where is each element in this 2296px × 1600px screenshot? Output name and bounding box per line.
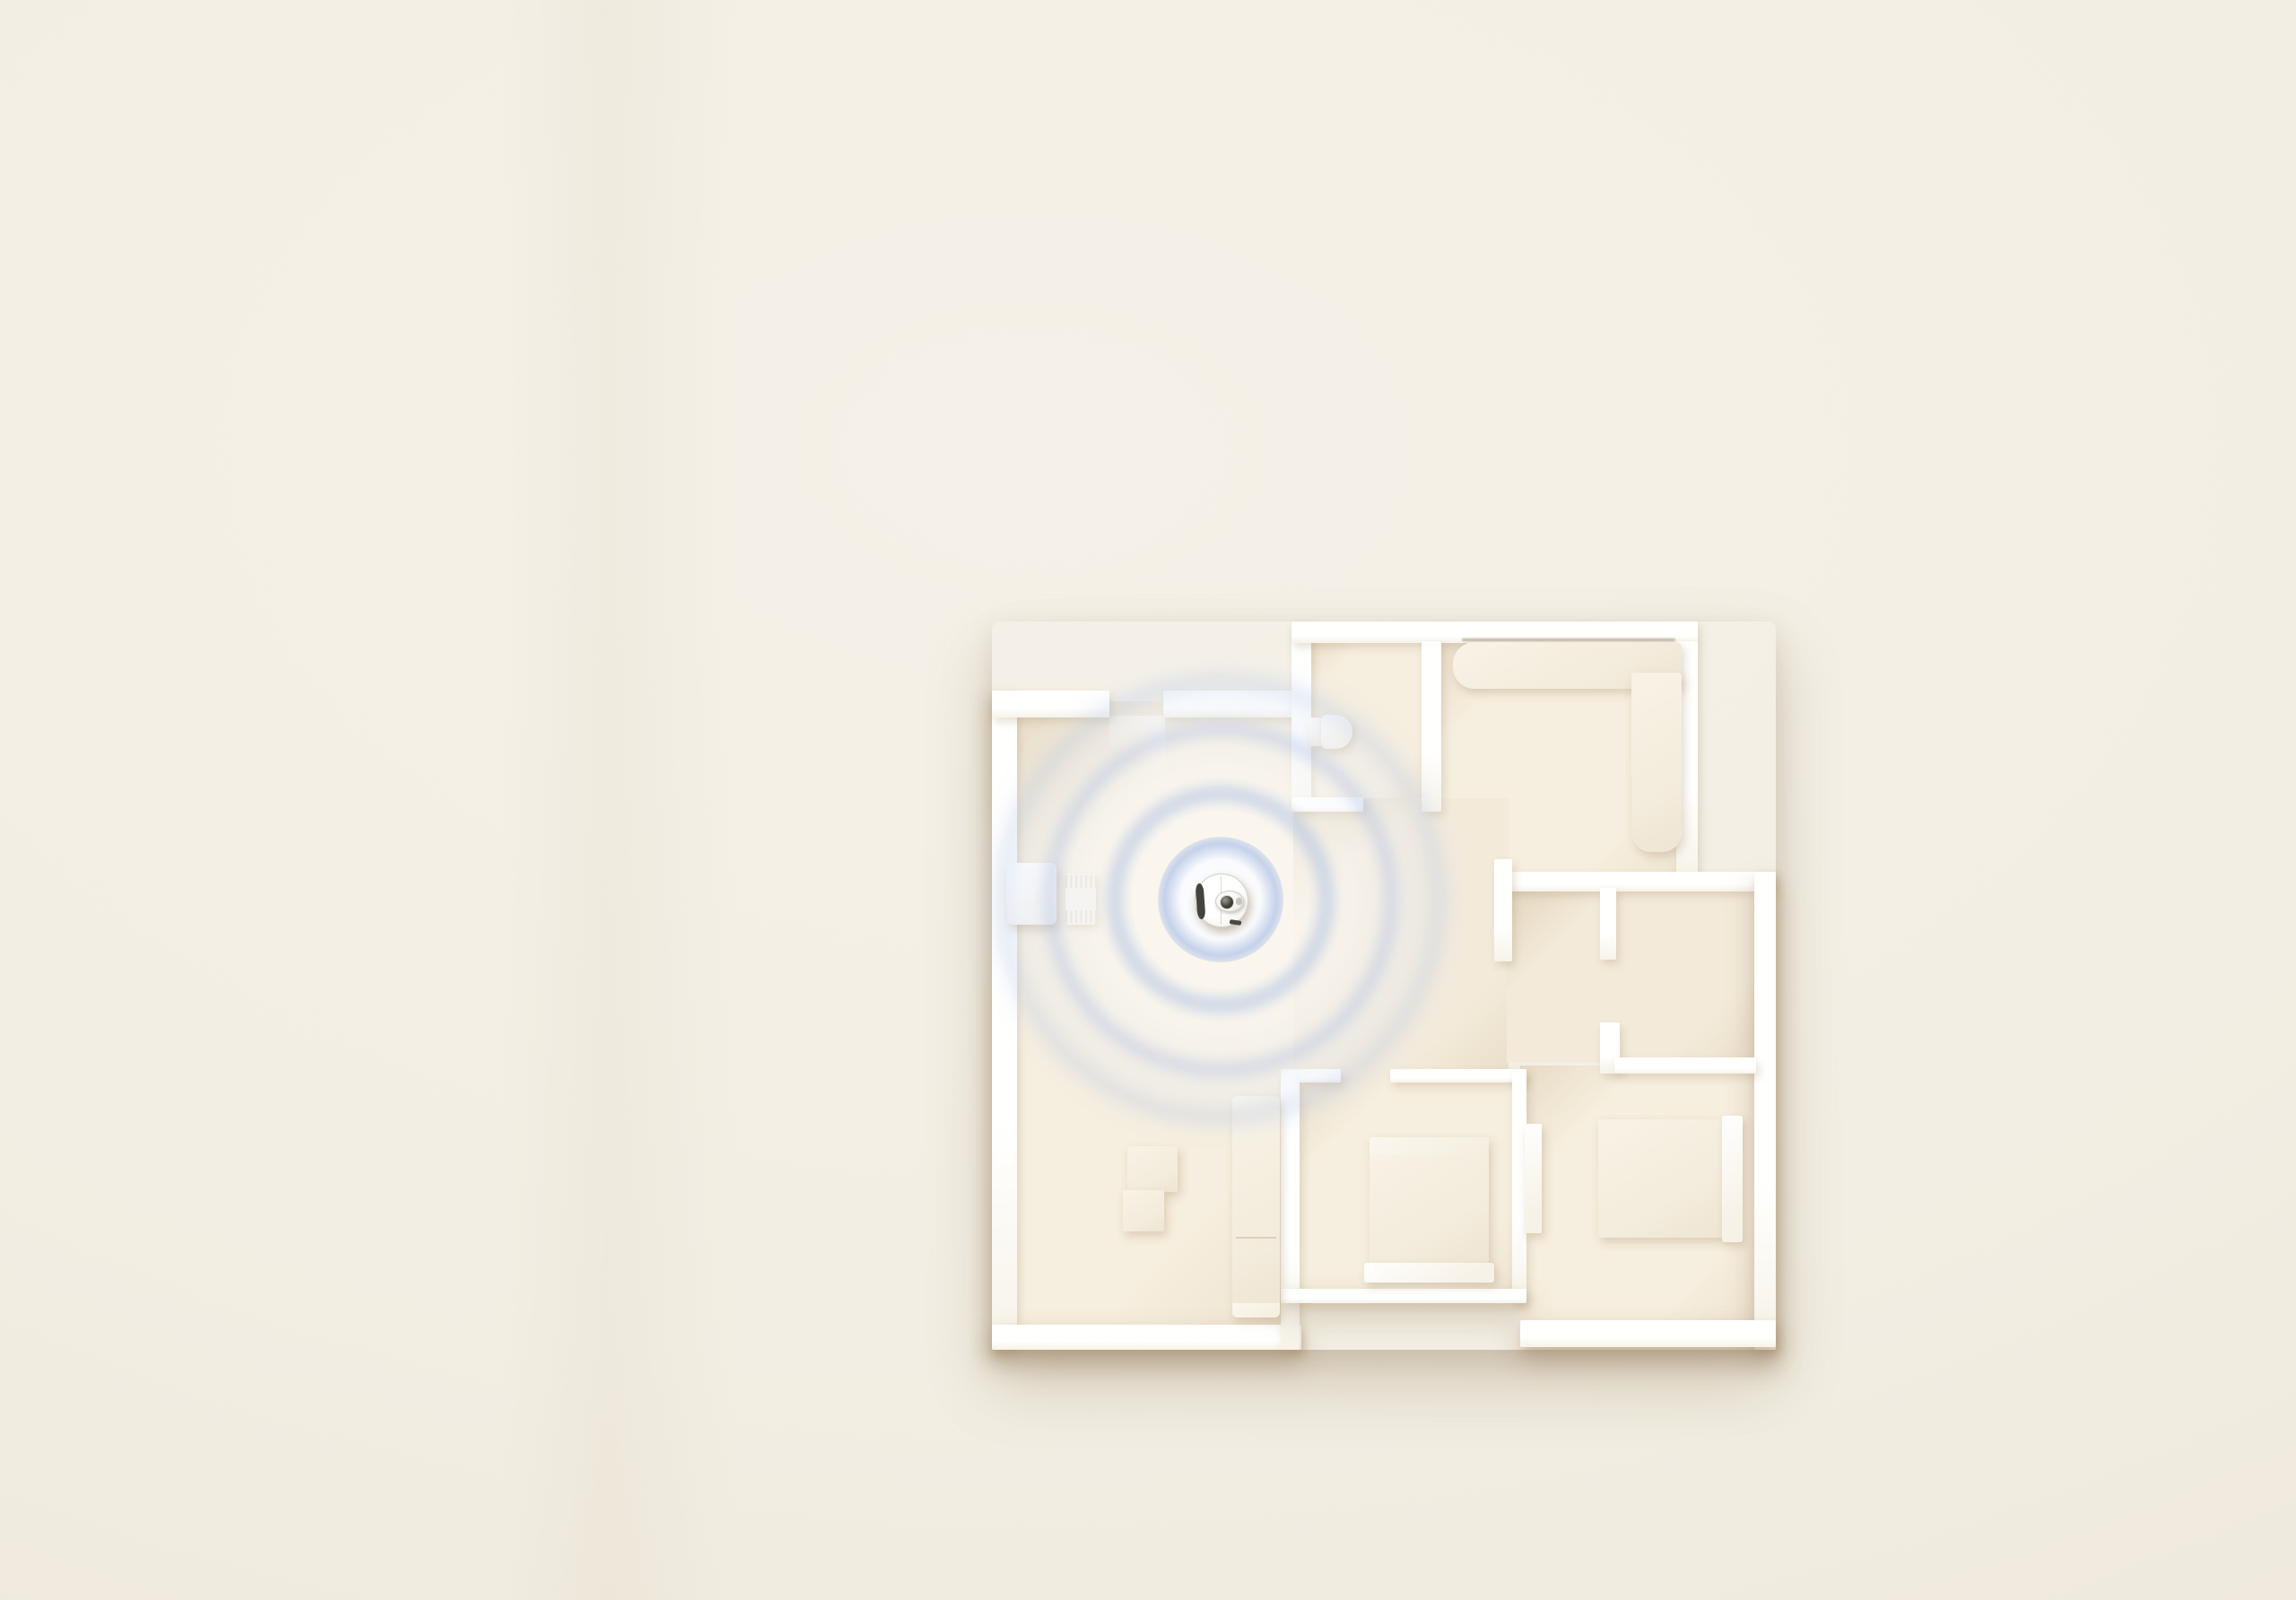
wall-living-left xyxy=(992,691,1017,1350)
storage-box-lower xyxy=(1123,1190,1164,1231)
dock-ribs-bottom xyxy=(1065,910,1096,923)
robot-camera-lens-icon xyxy=(1220,895,1234,909)
wall-bathroom-right xyxy=(1422,641,1441,812)
floor-closet-area xyxy=(1507,883,1760,1063)
robot-sensor-pill xyxy=(1236,898,1242,905)
dock-ribs-top xyxy=(1065,875,1096,888)
scene-canvas xyxy=(0,0,2296,1600)
robot-rear-sensor xyxy=(1230,919,1242,926)
bed-middle-mattress xyxy=(1370,1137,1489,1268)
wall-living-top-left xyxy=(992,691,1109,717)
storage-box-upper xyxy=(1127,1146,1178,1192)
wall-closet-left-stub xyxy=(1494,859,1512,961)
entry-door-light xyxy=(1109,716,1165,801)
floor-hallway xyxy=(1293,798,1509,1076)
dock-ramp-pad xyxy=(1065,874,1096,925)
wall-bedroom-middle-bottom xyxy=(1281,1289,1526,1303)
console-right-bedroom xyxy=(1525,1124,1542,1233)
robot-camera-module xyxy=(1215,891,1244,912)
robot-vacuum xyxy=(1195,874,1248,927)
wall-closet-partition xyxy=(1600,888,1616,960)
bed-middle-footboard xyxy=(1364,1263,1494,1283)
living-sofa-armrest-top xyxy=(1232,1096,1280,1109)
wall-bathroom-bottom xyxy=(1291,797,1363,812)
living-sofa-armrest-bottom xyxy=(1232,1303,1280,1317)
wall-bedroom-right-bottom xyxy=(1520,1320,1776,1347)
wall-living-bottom xyxy=(992,1325,1301,1350)
wall-right-outer xyxy=(1754,872,1776,1350)
wall-bedroom-middle-top-right xyxy=(1390,1069,1526,1083)
robot-side-sensor xyxy=(1196,883,1206,920)
bed-right-mattress xyxy=(1598,1119,1725,1238)
wall-living-top-right xyxy=(1163,691,1298,717)
charging-dock xyxy=(1006,863,1057,925)
living-sofa xyxy=(1232,1096,1280,1317)
toilet-tank xyxy=(1308,717,1321,746)
l-sofa-vertical xyxy=(1631,673,1682,852)
l-sofa-wall-seam xyxy=(1462,639,1675,641)
wall-closet-top xyxy=(1507,872,1776,891)
background-soft-shade xyxy=(502,0,735,1600)
wall-bedroom-middle-top-left xyxy=(1300,1069,1341,1083)
wall-bathroom-left xyxy=(1291,622,1311,812)
bed-right-headboard xyxy=(1722,1116,1743,1242)
living-sofa-seam xyxy=(1236,1237,1276,1239)
wall-rooms-divider xyxy=(1281,1069,1300,1350)
wall-bedroom-right-top xyxy=(1614,1057,1756,1074)
bed-middle-pillow-band xyxy=(1370,1137,1489,1155)
